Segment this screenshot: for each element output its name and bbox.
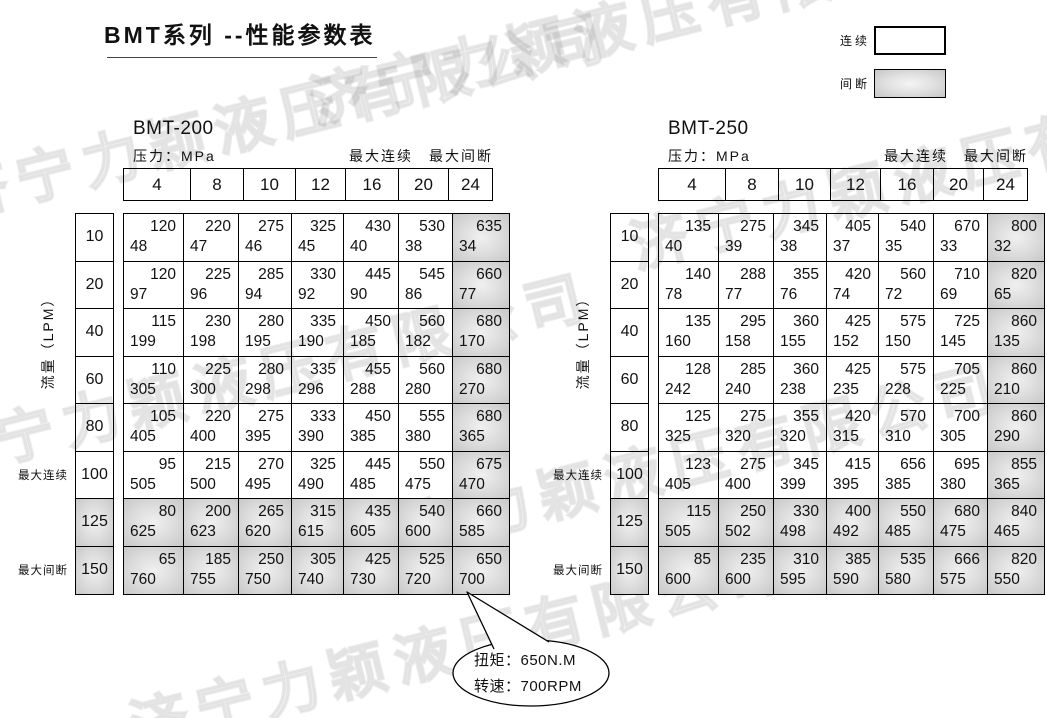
flow-axis-label: 流量（LPM） bbox=[38, 291, 58, 390]
torque-value: 710 bbox=[954, 265, 980, 284]
table-cell: 680365 bbox=[453, 404, 509, 452]
side-max-intermittent-label: 最大间断 bbox=[553, 562, 603, 578]
table-cell: 425152 bbox=[827, 309, 879, 357]
pressure-header-cell: 10 bbox=[244, 169, 296, 200]
speed-value: 152 bbox=[833, 332, 859, 351]
speed-value: 33 bbox=[940, 237, 957, 256]
table-title: BMT-200 bbox=[133, 118, 214, 140]
bmt-200-section: BMT-200 压力：MPa 最大连续 最大间断 481012162024 10… bbox=[18, 118, 518, 718]
torque-value: 555 bbox=[419, 407, 445, 426]
speed-value: 485 bbox=[350, 475, 376, 494]
table-cell: 275395 bbox=[239, 404, 292, 452]
torque-value: 250 bbox=[258, 550, 284, 569]
max-intermittent-label: 最大间断 bbox=[964, 146, 1028, 166]
speed-value: 400 bbox=[725, 475, 751, 494]
speed-value: 600 bbox=[405, 522, 431, 541]
table-cell: 335296 bbox=[292, 357, 344, 405]
speed-value: 380 bbox=[405, 427, 431, 446]
torque-value: 265 bbox=[258, 502, 284, 521]
table-cell: 275400 bbox=[719, 452, 774, 500]
table-cell: 415395 bbox=[827, 452, 879, 500]
speed-value: 380 bbox=[940, 475, 966, 494]
speed-value: 38 bbox=[780, 237, 797, 256]
speed-value: 498 bbox=[780, 522, 806, 541]
speed-value: 242 bbox=[665, 380, 691, 399]
table-cell: 666575 bbox=[934, 547, 988, 595]
table-cell: 250502 bbox=[719, 499, 774, 547]
torque-value: 330 bbox=[793, 502, 819, 521]
torque-value: 660 bbox=[476, 265, 502, 284]
speed-value: 69 bbox=[940, 285, 957, 304]
legend-continuous-label: 连续 bbox=[840, 32, 870, 49]
table-cell: 425730 bbox=[344, 547, 399, 595]
flow-label-cell: 150 bbox=[611, 547, 648, 595]
table-cell: 27546 bbox=[239, 214, 292, 262]
pressure-header-cell: 20 bbox=[399, 169, 449, 200]
speed-value: 595 bbox=[780, 570, 806, 589]
speed-value: 210 bbox=[994, 380, 1020, 399]
speed-value: 755 bbox=[190, 570, 216, 589]
speed-value: 37 bbox=[833, 237, 850, 256]
datasheet-page: 济宁力颖液压有限公司 济宁力颖液压有限公司 济宁力颖液压有限公司 济宁力颖液压有… bbox=[0, 0, 1047, 718]
speed-value: 485 bbox=[885, 522, 911, 541]
torque-value: 420 bbox=[845, 265, 871, 284]
torque-value: 675 bbox=[476, 455, 502, 474]
table-cell: 355320 bbox=[774, 404, 827, 452]
torque-value: 855 bbox=[1011, 455, 1037, 474]
torque-value: 335 bbox=[310, 312, 336, 331]
table-cell: 200623 bbox=[184, 499, 239, 547]
torque-value: 670 bbox=[954, 217, 980, 236]
torque-value: 360 bbox=[793, 360, 819, 379]
torque-value: 680 bbox=[476, 407, 502, 426]
speed-value: 40 bbox=[665, 237, 682, 256]
speed-value: 620 bbox=[245, 522, 271, 541]
speed-value: 495 bbox=[245, 475, 271, 494]
speed-value: 78 bbox=[665, 285, 682, 304]
torque-value: 225 bbox=[205, 265, 231, 284]
speed-value: 730 bbox=[350, 570, 376, 589]
flow-label-cell: 60 bbox=[611, 357, 648, 405]
torque-value: 115 bbox=[151, 312, 176, 331]
table-cell: 270495 bbox=[239, 452, 292, 500]
torque-value: 560 bbox=[419, 360, 445, 379]
pressure-header-cell: 24 bbox=[449, 169, 492, 200]
pressure-header-cell: 4 bbox=[124, 169, 191, 200]
table-cell: 35576 bbox=[774, 262, 827, 310]
flow-label-cell: 20 bbox=[76, 262, 113, 310]
table-cell: 425235 bbox=[827, 357, 879, 405]
speed-value: 135 bbox=[994, 332, 1020, 351]
speed-value: 199 bbox=[130, 332, 156, 351]
speed-value: 405 bbox=[665, 475, 691, 494]
table-cell: 385590 bbox=[827, 547, 879, 595]
speed-value: 77 bbox=[459, 285, 476, 304]
table-cell: 115505 bbox=[659, 499, 719, 547]
table-cell: 128242 bbox=[659, 357, 719, 405]
flow-label-cell: 20 bbox=[611, 262, 648, 310]
torque-value: 310 bbox=[793, 550, 819, 569]
legend-intermittent-swatch bbox=[874, 69, 946, 98]
speed-value: 72 bbox=[885, 285, 902, 304]
speed-value: 615 bbox=[298, 522, 324, 541]
speed-value: 235 bbox=[833, 380, 859, 399]
speed-value: 48 bbox=[130, 237, 147, 256]
speed-value: 39 bbox=[725, 237, 742, 256]
table-cell: 525720 bbox=[399, 547, 453, 595]
table-cell: 680270 bbox=[453, 357, 509, 405]
torque-value: 200 bbox=[205, 502, 231, 521]
table-cell: 220400 bbox=[184, 404, 239, 452]
torque-value: 285 bbox=[740, 360, 766, 379]
speed-value: 405 bbox=[130, 427, 156, 446]
side-max-continuous-label: 最大连续 bbox=[553, 467, 603, 483]
torque-value: 275 bbox=[258, 407, 284, 426]
torque-value: 540 bbox=[900, 217, 926, 236]
torque-value: 305 bbox=[310, 550, 336, 569]
pressure-header-cell: 10 bbox=[779, 169, 831, 200]
speed-value: 500 bbox=[190, 475, 216, 494]
speed-value: 94 bbox=[245, 285, 262, 304]
torque-value: 355 bbox=[793, 407, 819, 426]
speed-value: 238 bbox=[780, 380, 806, 399]
torque-value: 575 bbox=[900, 360, 926, 379]
torque-value: 660 bbox=[476, 502, 502, 521]
table-cell: 185755 bbox=[184, 547, 239, 595]
table-cell: 675470 bbox=[453, 452, 509, 500]
speed-value: 390 bbox=[298, 427, 324, 446]
torque-value: 430 bbox=[365, 217, 391, 236]
pressure-header-cell: 16 bbox=[346, 169, 399, 200]
table-cell: 450185 bbox=[344, 309, 399, 357]
table-cell: 54586 bbox=[399, 262, 453, 310]
flow-label-cell: 80 bbox=[611, 404, 648, 452]
torque-value: 295 bbox=[740, 312, 766, 331]
torque-value: 405 bbox=[845, 217, 871, 236]
pressure-header-cell: 24 bbox=[984, 169, 1027, 200]
table-cell: 12048 bbox=[124, 214, 184, 262]
table-cell: 115199 bbox=[124, 309, 184, 357]
speed-value: 325 bbox=[665, 427, 691, 446]
table-cell: 34538 bbox=[774, 214, 827, 262]
torque-value: 695 bbox=[954, 455, 980, 474]
torque-value: 450 bbox=[365, 407, 391, 426]
table-cell: 265620 bbox=[239, 499, 292, 547]
flow-label-cell: 100 bbox=[76, 452, 113, 500]
torque-value: 135 bbox=[685, 312, 711, 331]
speed-value: 505 bbox=[130, 475, 156, 494]
torque-value: 860 bbox=[1011, 312, 1037, 331]
torque-value: 85 bbox=[694, 550, 711, 569]
bmt-250-section: BMT-250 压力：MPa 最大连续 最大间断 481012162024 10… bbox=[553, 118, 1047, 718]
speed-value: 400 bbox=[190, 427, 216, 446]
flow-label-cell: 40 bbox=[76, 309, 113, 357]
speed-value: 492 bbox=[833, 522, 859, 541]
table-cell: 360238 bbox=[774, 357, 827, 405]
table-cell: 65760 bbox=[124, 547, 184, 595]
speed-value: 399 bbox=[780, 475, 806, 494]
table-cell: 280298 bbox=[239, 357, 292, 405]
torque-value: 705 bbox=[954, 360, 980, 379]
speed-value: 580 bbox=[885, 570, 911, 589]
table-cell: 650700 bbox=[453, 547, 509, 595]
table-cell: 85600 bbox=[659, 547, 719, 595]
torque-value: 80 bbox=[159, 502, 176, 521]
torque-value: 65 bbox=[159, 550, 176, 569]
table-cell: 54035 bbox=[879, 214, 934, 262]
title-underline bbox=[107, 57, 377, 58]
speed-value: 170 bbox=[459, 332, 485, 351]
max-continuous-label: 最大连续 bbox=[349, 146, 413, 166]
table-cell: 680170 bbox=[453, 309, 509, 357]
torque-value: 445 bbox=[365, 265, 391, 284]
table-cell: 660585 bbox=[453, 499, 509, 547]
table-cell: 295158 bbox=[719, 309, 774, 357]
pressure-unit-label: 压力：MPa bbox=[668, 146, 751, 166]
speed-value: 34 bbox=[459, 237, 476, 256]
pressure-header-cell: 20 bbox=[934, 169, 984, 200]
pressure-unit-label: 压力：MPa bbox=[133, 146, 216, 166]
torque-value: 656 bbox=[900, 455, 926, 474]
speed-value: 240 bbox=[725, 380, 751, 399]
speed-value: 290 bbox=[994, 427, 1020, 446]
table-cell: 67033 bbox=[934, 214, 988, 262]
table-cell: 450385 bbox=[344, 404, 399, 452]
table-cell: 700305 bbox=[934, 404, 988, 452]
torque-value: 560 bbox=[419, 312, 445, 331]
table-cell: 12097 bbox=[124, 262, 184, 310]
speed-value: 300 bbox=[190, 380, 216, 399]
speed-value: 600 bbox=[725, 570, 751, 589]
speed-value: 35 bbox=[885, 237, 902, 256]
speed-value: 46 bbox=[245, 237, 262, 256]
table-cell: 285240 bbox=[719, 357, 774, 405]
table-cell: 725145 bbox=[934, 309, 988, 357]
torque-value: 140 bbox=[685, 265, 711, 284]
speed-value: 315 bbox=[833, 427, 859, 446]
speed-value: 395 bbox=[245, 427, 271, 446]
table-cell: 335190 bbox=[292, 309, 344, 357]
speed-value: 320 bbox=[725, 427, 751, 446]
speed-value: 605 bbox=[350, 522, 376, 541]
torque-value: 435 bbox=[365, 502, 391, 521]
speed-value: 475 bbox=[940, 522, 966, 541]
speed-value: 38 bbox=[405, 237, 422, 256]
torque-value: 230 bbox=[205, 312, 231, 331]
torque-value: 325 bbox=[310, 455, 336, 474]
table-cell: 705225 bbox=[934, 357, 988, 405]
speed-value: 320 bbox=[780, 427, 806, 446]
table-cell: 215500 bbox=[184, 452, 239, 500]
speed-value: 77 bbox=[725, 285, 742, 304]
torque-value: 120 bbox=[150, 265, 176, 284]
table-cell: 123405 bbox=[659, 452, 719, 500]
torque-value: 425 bbox=[845, 360, 871, 379]
table-cell: 280195 bbox=[239, 309, 292, 357]
speed-value: 750 bbox=[245, 570, 271, 589]
table-cell: 560182 bbox=[399, 309, 453, 357]
torque-value: 275 bbox=[740, 455, 766, 474]
torque-value: 275 bbox=[740, 217, 766, 236]
table-cell: 550475 bbox=[399, 452, 453, 500]
table-cell: 345399 bbox=[774, 452, 827, 500]
table-cell: 575228 bbox=[879, 357, 934, 405]
torque-value: 455 bbox=[365, 360, 391, 379]
table-cell: 110305 bbox=[124, 357, 184, 405]
table-cell: 28877 bbox=[719, 262, 774, 310]
torque-value: 725 bbox=[954, 312, 980, 331]
table-cell: 44590 bbox=[344, 262, 399, 310]
speed-value: 92 bbox=[298, 285, 315, 304]
torque-value: 560 bbox=[900, 265, 926, 284]
table-cell: 56072 bbox=[879, 262, 934, 310]
torque-value: 270 bbox=[258, 455, 284, 474]
torque-value: 125 bbox=[685, 407, 711, 426]
table-cell: 540600 bbox=[399, 499, 453, 547]
speed-value: 575 bbox=[940, 570, 966, 589]
torque-value: 345 bbox=[793, 455, 819, 474]
torque-value: 225 bbox=[205, 360, 231, 379]
speed-value: 623 bbox=[190, 522, 216, 541]
torque-value: 840 bbox=[1011, 502, 1037, 521]
callout-speed: 转速：700RPM bbox=[474, 674, 582, 700]
table-cell: 33092 bbox=[292, 262, 344, 310]
torque-value: 275 bbox=[740, 407, 766, 426]
callout-text: 扭矩：650N.M 转速：700RPM bbox=[474, 648, 582, 700]
table-cell: 63534 bbox=[453, 214, 509, 262]
table-cell: 400492 bbox=[827, 499, 879, 547]
speed-value: 47 bbox=[190, 237, 207, 256]
performance-table: 1204822047275463254543040530386353412097… bbox=[123, 213, 510, 595]
torque-value: 185 bbox=[205, 550, 231, 569]
table-cell: 695380 bbox=[934, 452, 988, 500]
table-cell: 550485 bbox=[879, 499, 934, 547]
speed-value: 198 bbox=[190, 332, 216, 351]
pressure-header-row: 481012162024 bbox=[123, 168, 493, 201]
page-title: BMT系列 --性能参数表 bbox=[104, 16, 376, 50]
table-cell: 71069 bbox=[934, 262, 988, 310]
torque-value: 545 bbox=[419, 265, 445, 284]
torque-value: 860 bbox=[1011, 407, 1037, 426]
torque-value: 680 bbox=[954, 502, 980, 521]
flow-label-column: 1020406080100125150 bbox=[75, 213, 114, 595]
torque-value: 575 bbox=[900, 312, 926, 331]
flow-label-cell: 40 bbox=[611, 309, 648, 357]
speed-value: 96 bbox=[190, 285, 207, 304]
torque-value: 800 bbox=[1011, 217, 1037, 236]
torque-value: 285 bbox=[258, 265, 284, 284]
table-cell: 250750 bbox=[239, 547, 292, 595]
speed-value: 160 bbox=[665, 332, 691, 351]
torque-value: 550 bbox=[900, 502, 926, 521]
torque-value: 330 bbox=[310, 265, 336, 284]
table-cell: 680475 bbox=[934, 499, 988, 547]
torque-value: 110 bbox=[151, 360, 176, 379]
table-cell: 135160 bbox=[659, 309, 719, 357]
speed-value: 32 bbox=[994, 237, 1011, 256]
table-cell: 230198 bbox=[184, 309, 239, 357]
table-cell: 330498 bbox=[774, 499, 827, 547]
table-cell: 360155 bbox=[774, 309, 827, 357]
torque-value: 128 bbox=[685, 360, 711, 379]
torque-value: 280 bbox=[258, 360, 284, 379]
table-cell: 28594 bbox=[239, 262, 292, 310]
pressure-header-cell: 4 bbox=[659, 169, 726, 200]
table-cell: 42074 bbox=[827, 262, 879, 310]
torque-value: 95 bbox=[159, 455, 176, 474]
flow-label-cell: 10 bbox=[611, 214, 648, 262]
speed-value: 470 bbox=[459, 475, 485, 494]
torque-value: 666 bbox=[954, 550, 980, 569]
torque-value: 680 bbox=[476, 360, 502, 379]
table-cell: 105405 bbox=[124, 404, 184, 452]
torque-value: 360 bbox=[793, 312, 819, 331]
speed-value: 305 bbox=[940, 427, 966, 446]
speed-value: 700 bbox=[459, 570, 485, 589]
speed-value: 185 bbox=[350, 332, 376, 351]
speed-value: 76 bbox=[780, 285, 797, 304]
max-continuous-label: 最大连续 bbox=[884, 146, 948, 166]
table-cell: 43040 bbox=[344, 214, 399, 262]
speed-value: 600 bbox=[665, 570, 691, 589]
pressure-header-cell: 8 bbox=[191, 169, 244, 200]
speed-value: 385 bbox=[350, 427, 376, 446]
speed-value: 625 bbox=[130, 522, 156, 541]
table-cell: 275320 bbox=[719, 404, 774, 452]
pressure-header-cell: 12 bbox=[296, 169, 346, 200]
torque-value: 280 bbox=[258, 312, 284, 331]
torque-value: 220 bbox=[205, 217, 231, 236]
torque-value: 123 bbox=[685, 455, 711, 474]
torque-value: 635 bbox=[476, 217, 502, 236]
table-cell: 32545 bbox=[292, 214, 344, 262]
speed-value: 225 bbox=[940, 380, 966, 399]
torque-value: 425 bbox=[845, 312, 871, 331]
speed-value: 585 bbox=[459, 522, 485, 541]
speed-value: 365 bbox=[994, 475, 1020, 494]
torque-value: 115 bbox=[686, 502, 711, 521]
speed-value: 65 bbox=[994, 285, 1011, 304]
speed-value: 305 bbox=[130, 380, 156, 399]
torque-value: 400 bbox=[845, 502, 871, 521]
torque-value: 415 bbox=[845, 455, 871, 474]
torque-value: 325 bbox=[310, 217, 336, 236]
torque-value: 650 bbox=[476, 550, 502, 569]
pressure-header-cell: 16 bbox=[881, 169, 934, 200]
torque-value: 385 bbox=[845, 550, 871, 569]
table-cell: 305740 bbox=[292, 547, 344, 595]
speed-value: 365 bbox=[459, 427, 485, 446]
torque-value: 215 bbox=[205, 455, 231, 474]
torque-value: 250 bbox=[740, 502, 766, 521]
flow-label-cell: 150 bbox=[76, 547, 113, 595]
speed-value: 182 bbox=[405, 332, 431, 351]
table-cell: 555380 bbox=[399, 404, 453, 452]
speed-value: 590 bbox=[833, 570, 859, 589]
table-cell: 575150 bbox=[879, 309, 934, 357]
flow-axis-label: 流量（LPM） bbox=[573, 291, 593, 390]
torque-value: 333 bbox=[310, 407, 336, 426]
torque-value: 315 bbox=[310, 502, 336, 521]
speed-value: 490 bbox=[298, 475, 324, 494]
speed-value: 40 bbox=[350, 237, 367, 256]
torque-value: 355 bbox=[793, 265, 819, 284]
table-cell: 840465 bbox=[988, 499, 1044, 547]
flow-label-column: 1020406080100125150 bbox=[610, 213, 649, 595]
speed-value: 298 bbox=[245, 380, 271, 399]
speed-value: 97 bbox=[130, 285, 147, 304]
speed-value: 190 bbox=[298, 332, 324, 351]
